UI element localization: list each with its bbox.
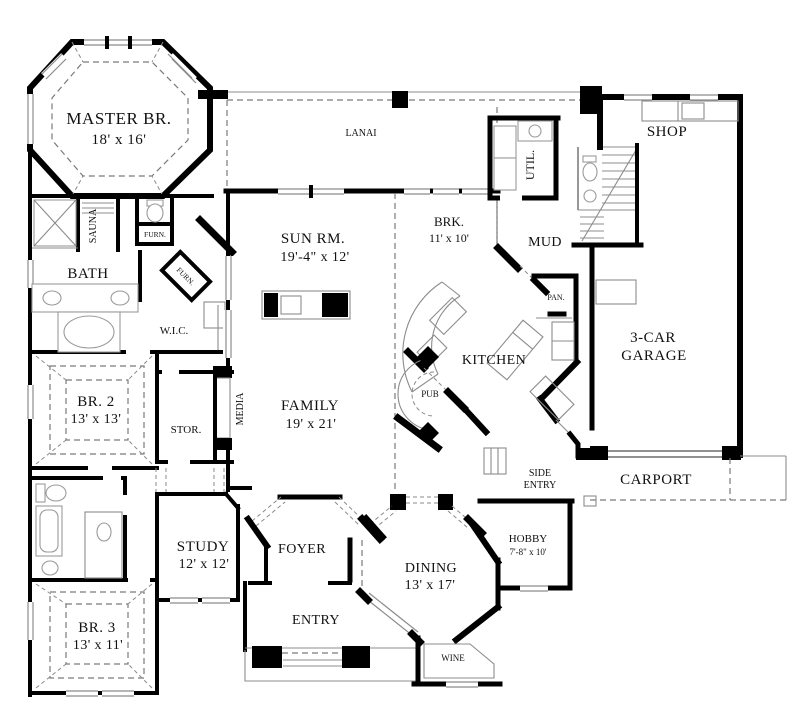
label-side-entry1: SIDE [529,468,551,479]
island-icon [487,320,543,380]
floor-plan-page: MASTER BR. 18' x 16' LANAI SHOP UTIL. SA… [0,0,800,720]
wine-room-walls [414,638,500,689]
side-entry-corner [576,448,594,460]
floor-plan-drawing: MASTER BR. 18' x 16' LANAI SHOP UTIL. SA… [0,0,800,720]
workbench-icon [642,101,738,121]
bathtub-icon [64,316,114,348]
washer-icon [494,126,516,158]
label-master: MASTER BR. [66,109,171,128]
toilet-tank [36,484,45,502]
foyer-walls [248,497,380,583]
fireplace-icon [262,291,350,319]
label-media: MEDIA [235,392,246,426]
label-entry: ENTRY [292,613,340,628]
powder-room [578,147,597,210]
cooktop-icon [430,298,467,335]
side-entry-steps-icon [484,448,506,474]
vanity-and-tub-icons [32,284,138,352]
lanai-outline [198,86,602,250]
toilet-icon [583,163,597,181]
label-side-entry2: ENTRY [524,480,557,491]
label-br2: BR. 2 [77,394,115,410]
sink-icon [111,291,129,305]
toilet-icon [46,485,66,501]
label-sunrm-size: 19'-4" x 12' [280,250,349,265]
label-hobby: HOBBY [509,533,548,545]
label-hobby-size: 7'-8" x 10' [510,547,547,557]
sink-icon [584,190,596,202]
label-br3-size: 13' x 11' [73,638,123,653]
label-study: STUDY [177,539,230,555]
label-shop: SHOP [647,124,687,140]
garage-door-post [722,446,741,460]
porch-column [342,646,370,668]
label-stor: STOR. [171,424,202,436]
label-mud: MUD [528,235,562,250]
label-family: FAMILY [281,398,339,414]
dining-post [390,494,406,510]
label-study-size: 12' x 12' [179,557,230,572]
label-sauna: SAUNA [88,208,99,243]
label-family-size: 19' x 21' [286,417,337,432]
label-pan: PAN. [547,293,564,302]
label-wine: WINE [441,653,465,663]
label-wic: W.I.C. [160,325,189,337]
label-sunrm: SUN RM. [281,231,345,247]
utility-walls [490,118,558,250]
dryer-icon [494,158,516,190]
label-lanai: LANAI [345,128,376,139]
laundry-sink-icon [529,125,541,137]
label-br3: BR. 3 [78,620,116,636]
toilet-tank [583,156,596,162]
entry-porch [245,583,418,681]
tray-ceiling-br2 [36,356,152,464]
label-dining-size: 13' x 17' [405,578,456,593]
water-closet [85,512,122,578]
toilet-icon-master [147,200,163,222]
counter-icon [530,376,574,420]
lanai-post [392,91,408,108]
shower-icon [34,200,76,246]
label-garage2: GARAGE [621,348,687,364]
label-brk-size: 11' x 10' [429,231,469,245]
label-master-size: 18' x 16' [92,132,147,148]
label-foyer: FOYER [278,542,326,557]
sink-icon [43,291,61,305]
label-util: UTIL. [523,150,537,180]
toilet-icon [97,523,111,541]
label-br2-size: 13' x 13' [71,412,122,427]
tray-ceiling-br3 [36,584,152,688]
wic-shelving-icon [204,302,225,350]
sink-icon [42,561,58,575]
label-dining: DINING [405,561,457,576]
label-garage1: 3-CAR [630,330,676,346]
label-brk: BRK. [434,214,464,229]
label-kitchen: KITCHEN [462,353,526,368]
under-stair-closet [596,280,636,304]
porch-column [252,646,282,668]
label-carport: CARPORT [620,472,692,488]
label-furn-closet: FURN. [144,230,166,239]
dining-post [438,494,453,510]
bath2-fixtures [36,484,122,578]
label-pub: PUB [421,389,439,399]
label-bath: BATH [67,266,108,282]
